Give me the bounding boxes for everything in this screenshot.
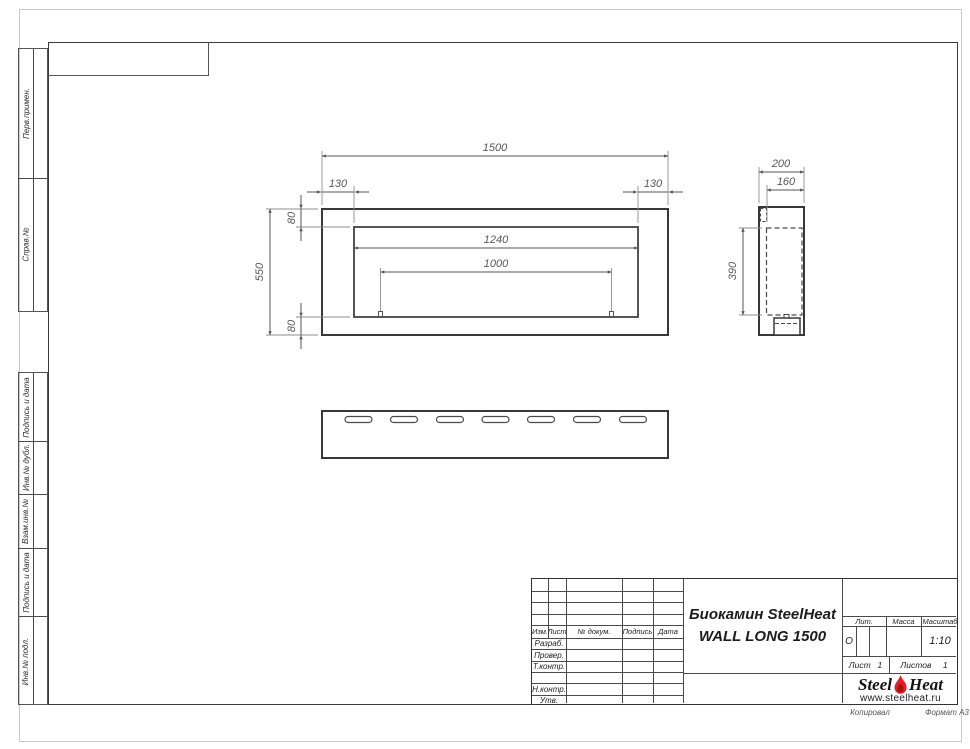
- row-razrab: Разраб.: [532, 638, 566, 649]
- dim-side-depth: 200: [771, 158, 791, 170]
- doc-title-line2: WALL LONG 1500: [699, 626, 826, 649]
- bottom-view: [322, 411, 668, 458]
- format-note: Формат А3: [917, 708, 970, 717]
- lit-value: О: [842, 626, 856, 656]
- dim-side-inner-depth: 160: [777, 176, 796, 188]
- dim-front-overall-width: 1500: [483, 142, 508, 154]
- sheet-cell: Лист 1: [842, 656, 889, 673]
- brand-word-steel: Steel: [858, 675, 892, 695]
- scale-value: 1:10: [921, 626, 959, 656]
- sheet-number: 1: [877, 660, 882, 670]
- row-empty: [532, 672, 566, 683]
- row-tkontr: Т.контр.: [532, 661, 566, 672]
- row-utv: Утв.: [532, 695, 566, 706]
- scale-label: Масштаб: [921, 616, 959, 626]
- sheets-cell: Листов 1: [889, 656, 959, 673]
- row-nkontr: Н.контр.: [532, 683, 566, 695]
- dim-front-overall-height: 550: [254, 262, 266, 281]
- col-izm: Изм.: [532, 625, 548, 638]
- sheet-label: Лист: [849, 660, 871, 670]
- flame-icon: [893, 675, 908, 694]
- title-block: Изм. Лист № докум. Подпись Дата Разраб. …: [531, 578, 958, 705]
- sheets-total: 1: [943, 660, 948, 670]
- col-list: Лист: [548, 625, 566, 638]
- dim-burner-length: 1000: [484, 258, 509, 270]
- doc-title: Биокамин SteelHeat WALL LONG 1500: [683, 579, 842, 673]
- burner-mark-right: [610, 312, 614, 317]
- brand-word-heat: Heat: [909, 675, 943, 695]
- burner-mark-left: [379, 312, 383, 317]
- copy-note: Копировал: [820, 708, 920, 717]
- brand-website: www.steelheat.ru: [860, 693, 941, 704]
- col-date: Дата: [653, 625, 683, 638]
- row-prover: Провер.: [532, 649, 566, 661]
- side-view: [759, 207, 804, 335]
- dim-opening-width: 1240: [484, 234, 509, 246]
- sheets-label: Листов: [900, 660, 931, 670]
- mass-label: Масса: [886, 616, 921, 626]
- doc-title-line1: Биокамин SteelHeat: [689, 604, 836, 627]
- dim-side-inner-height: 390: [727, 261, 739, 280]
- brand-logo: Steel Heat www.steelheat.ru: [842, 673, 959, 706]
- dim-front-top-flange: 80: [286, 211, 298, 224]
- drawing-sheet: { "page": { "copy_note": "Копировал", "f…: [0, 0, 970, 749]
- col-signature: Подпись: [622, 625, 653, 638]
- col-doc-number: № докум.: [566, 625, 622, 638]
- dim-front-bottom-flange: 80: [286, 319, 298, 332]
- burner-block: [774, 318, 800, 335]
- dim-front-left-offset: 130: [329, 178, 348, 190]
- lit-label: Лит.: [842, 616, 886, 626]
- dim-front-right-offset: 130: [644, 178, 663, 190]
